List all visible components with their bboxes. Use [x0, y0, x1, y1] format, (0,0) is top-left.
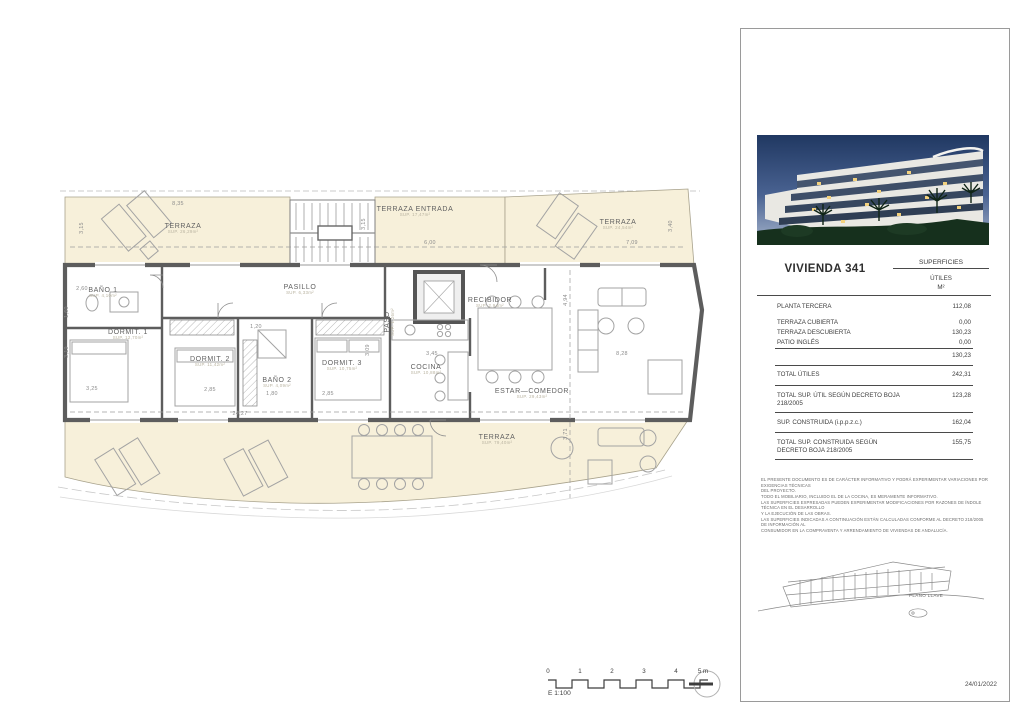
room-area: SUP. 17,47m² [377, 213, 454, 218]
dimension: 1,80 [266, 391, 278, 397]
scale-tick: 0 [546, 668, 549, 675]
dimension: 6,00 [424, 240, 436, 246]
surfaces-subheader-m2: M² [893, 284, 989, 291]
disclaimer-line: CONSUMIDOR EN LA COMPRAVENTA Y ARRENDAMI… [761, 528, 989, 534]
keyplan-label: PLANO LLAVE [909, 593, 943, 598]
room-area: SUP. 4,10m² [88, 294, 117, 299]
disclaimer-line: LAS SUPERFICIES EXPRESADAS PUEDEN EXPERI… [761, 500, 989, 511]
scale-tick: 2 [610, 668, 613, 675]
dimension: 2,60 [76, 286, 88, 292]
scale-tick: 3 [642, 668, 645, 675]
dimension: 3,15 [79, 222, 85, 234]
dimension: 4,94 [563, 294, 569, 306]
room-label-dormit2: DORMIT. 2 SUP. 11,42m² [190, 356, 230, 368]
room-label-recibidor: RECIBIDOR SUP. 2,94m² [468, 297, 512, 309]
date-stamp: 24/01/2022 [965, 681, 997, 688]
dimension: 3,40 [668, 220, 674, 232]
row-value: 130,23 [911, 329, 971, 336]
info-panel: VIVIENDA 341 SUPERFICIES ÚTILES M² PLANT… [740, 28, 1010, 702]
dimension: 3,71 [563, 428, 569, 440]
dimension: 3,25 [86, 386, 98, 392]
keyplan-sketch [755, 549, 991, 639]
room-area: SUP. 79,40m² [479, 441, 516, 446]
room-label-cocina: COCINA SUP. 10,88m² [411, 364, 442, 376]
room-area: SUP. 1,26m² [391, 308, 396, 336]
room-label-dormit1: DORMIT. 1 SUP. 12,70m² [108, 329, 148, 341]
room-label-terraza-ne: TERRAZA SUP. 24,54m² [600, 219, 637, 231]
row-value: 112,08 [911, 303, 971, 310]
room-area: SUP. 29,43m² [495, 395, 569, 400]
scale-tick: 1 [578, 668, 581, 675]
dimension: 1,20 [250, 324, 262, 330]
row-label: TOTAL SUP. CONSTRUIDA SEGÚN DECRETO BOJA… [777, 439, 905, 455]
room-area: SUP. 10,75m² [322, 367, 362, 372]
surfaces-header: SUPERFICIES [893, 259, 989, 269]
row-label: TOTAL SUP. ÚTIL SEGÚN DECRETO BOJA 218/2… [777, 392, 905, 408]
room-label-terraza-nw: TERRAZA SUP. 26,29m² [165, 223, 202, 235]
row-value: 130,23 [911, 352, 971, 359]
surfaces-subheader-utiles: ÚTILES [893, 275, 989, 282]
plan-sheet: TERRAZA SUP. 26,29m² TERRAZA ENTRADA SUP… [0, 0, 1024, 724]
dimension: 8,28 [616, 351, 628, 357]
row-label: TOTAL ÚTILES [777, 371, 905, 379]
room-label-terraza-entrada: TERRAZA ENTRADA SUP. 17,47m² [377, 206, 454, 218]
room-label-bano2: BAÑO 2 SUP. 4,09m² [262, 377, 291, 389]
row-value: 242,31 [911, 371, 971, 378]
row-value: 0,00 [911, 339, 971, 346]
room-label-terraza-sur: TERRAZA SUP. 79,40m² [479, 434, 516, 446]
row-value: 155,75 [911, 439, 971, 446]
room-area: SUP. 26,29m² [165, 230, 202, 235]
row-label: PLANTA TERCERA [777, 303, 905, 311]
row-label: TERRAZA DESCUBIERTA [777, 329, 905, 337]
room-label-paso: PASO SUP. 1,26m² [384, 308, 396, 336]
divider [775, 348, 973, 349]
room-area: SUP. 4,09m² [262, 384, 291, 389]
dimension: 8,35 [172, 201, 184, 207]
divider [775, 365, 973, 366]
scale-tick: 4 [674, 668, 677, 675]
divider [757, 295, 991, 296]
row-label: SUP. CONSTRUIDA (i.p.p.z.c.) [777, 419, 905, 427]
row-value: 0,00 [911, 319, 971, 326]
row-value: 162,04 [911, 419, 971, 426]
dimension: 1,60 [64, 306, 70, 318]
row-label: PATIO INGLÉS [777, 339, 905, 347]
building-photo [757, 135, 989, 245]
row-value: 123,28 [911, 392, 971, 399]
room-area: SUP. 24,54m² [600, 226, 637, 231]
dimension: 3,09 [365, 344, 371, 356]
disclaimer-text: EL PRESENTE DOCUMENTO ES DE CARÁCTER INF… [761, 477, 989, 534]
unit-title: VIVIENDA 341 [759, 263, 891, 275]
room-area: SUP. 2,94m² [468, 304, 512, 309]
scale-label: E 1:100 [548, 690, 571, 697]
room-area: SUP. 10,88m² [411, 371, 442, 376]
room-area: SUP. 12,70m² [108, 336, 148, 341]
disclaimer-line: LAS SUPERFICIES INDICADAS A CONTINUACIÓN… [761, 517, 989, 528]
room-label-bano1: BAÑO 1 SUP. 4,10m² [88, 287, 117, 299]
room-label-estar-comedor: ESTAR—COMEDOR SUP. 29,43m² [495, 388, 569, 400]
disclaimer-line: EL PRESENTE DOCUMENTO ES DE CARÁCTER INF… [761, 477, 989, 488]
row-label: TERRAZA CUBIERTA [777, 319, 905, 327]
dimension: 7,09 [626, 240, 638, 246]
dimension: 2,85 [204, 387, 216, 393]
dimension: 3,15 [361, 218, 367, 230]
scale-tick: 5 m [698, 668, 708, 675]
room-area: SUP. 11,42m² [190, 363, 230, 368]
divider [775, 385, 973, 386]
room-label-dormit3: DORMIT. 3 SUP. 10,75m² [322, 360, 362, 372]
divider [775, 459, 973, 460]
room-label-pasillo: PASILLO SUP. 6,33m² [284, 284, 317, 296]
room-area: SUP. 6,33m² [284, 291, 317, 296]
dimension: 3,19 [64, 346, 70, 358]
divider [775, 412, 973, 413]
dimension: 24,27 [233, 411, 248, 417]
divider [775, 432, 973, 433]
dimension: 3,45 [426, 351, 438, 357]
dimension: 2,85 [322, 391, 334, 397]
